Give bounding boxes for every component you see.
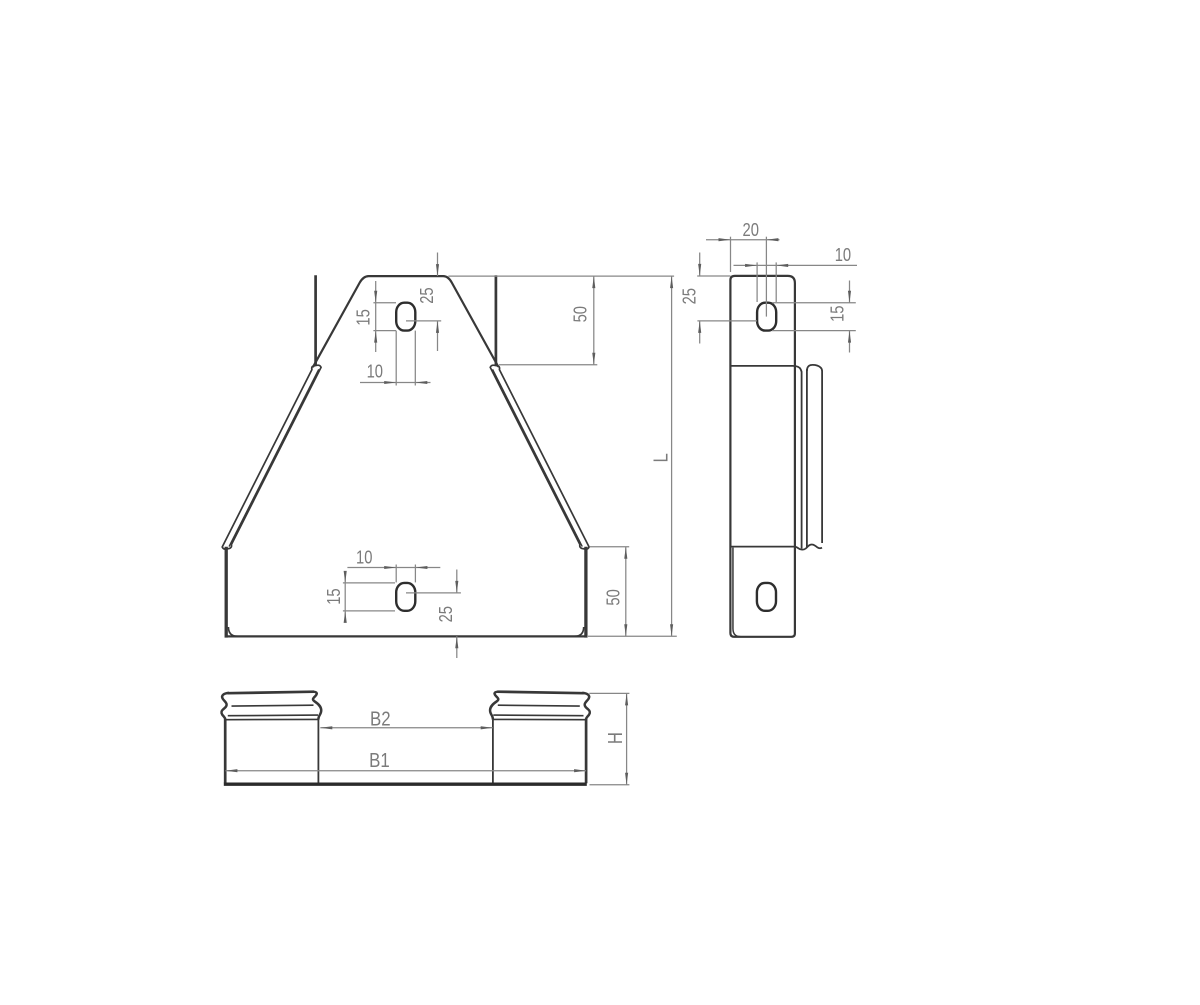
svg-text:10: 10 (356, 548, 372, 568)
svg-text:15: 15 (827, 306, 847, 322)
svg-text:25: 25 (679, 288, 699, 304)
svg-text:L: L (650, 453, 673, 462)
svg-text:20: 20 (743, 220, 759, 240)
svg-text:10: 10 (367, 362, 383, 382)
svg-text:25: 25 (436, 606, 456, 622)
svg-text:H: H (604, 732, 627, 744)
svg-text:B2: B2 (370, 708, 391, 731)
svg-text:50: 50 (603, 589, 623, 605)
svg-text:B1: B1 (369, 749, 390, 772)
svg-text:10: 10 (835, 245, 851, 265)
svg-text:25: 25 (417, 287, 437, 303)
svg-text:15: 15 (324, 588, 344, 604)
svg-text:50: 50 (571, 306, 591, 322)
svg-text:15: 15 (353, 309, 373, 325)
